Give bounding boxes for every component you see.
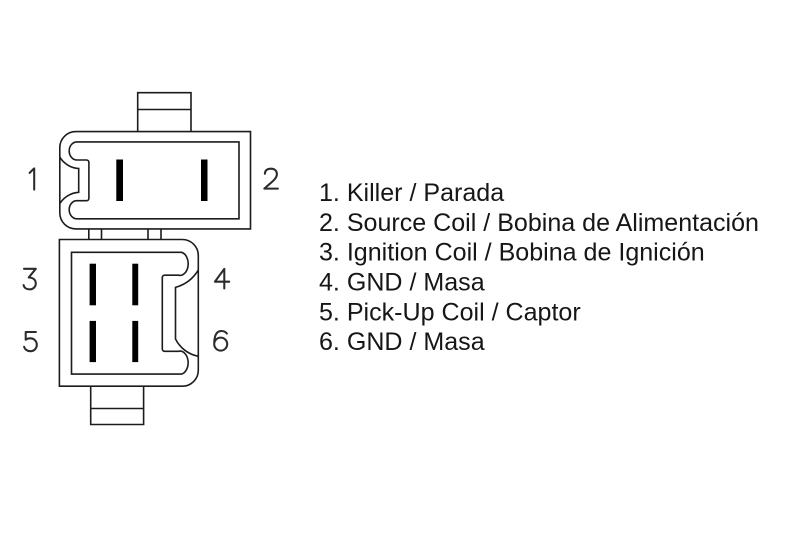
svg-text:2. Source Coil / Bobina de Ali: 2. Source Coil / Bobina de Alimentación (319, 209, 759, 237)
svg-text:4. GND / Masa: 4. GND / Masa (319, 269, 485, 297)
svg-text:6. GND / Masa: 6. GND / Masa (319, 328, 485, 356)
svg-text:1. Killer / Parada: 1. Killer / Parada (319, 179, 504, 207)
svg-text:5. Pick-Up Coil / Captor: 5. Pick-Up Coil / Captor (319, 298, 581, 326)
svg-text:3. Ignition Coil / Bobina de I: 3. Ignition Coil / Bobina de Ignición (319, 239, 705, 267)
